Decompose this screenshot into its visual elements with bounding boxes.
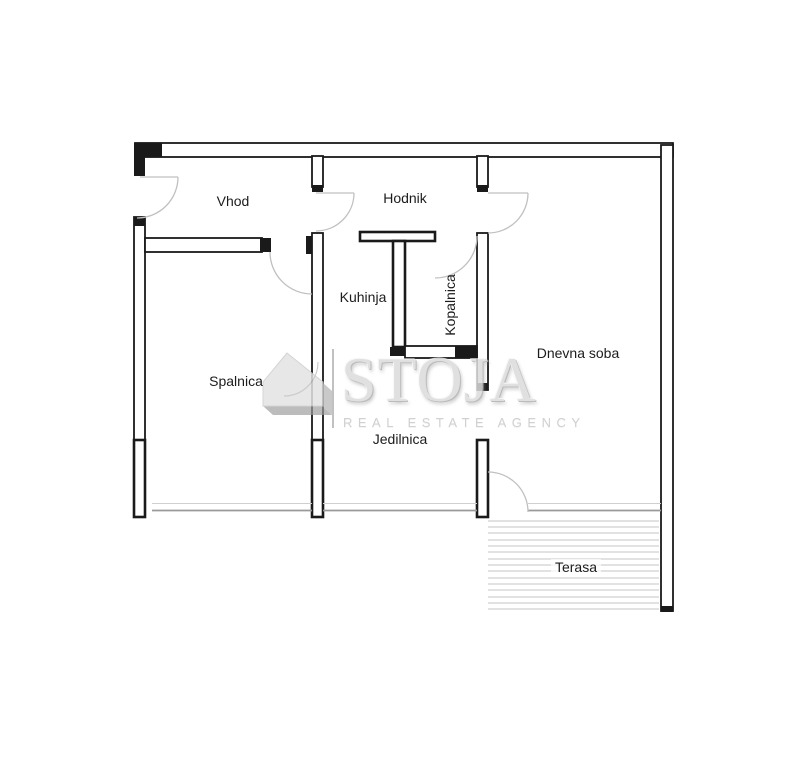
room-label-vhod: Vhod <box>217 193 250 209</box>
wall-dnevna-divider-lower <box>477 440 488 517</box>
room-label-kuhinja: Kuhinja <box>340 289 387 305</box>
wall-cap-kopalnica-bottom <box>455 346 477 358</box>
wall-right-outer <box>661 145 673 611</box>
room-label-kopalnica: Kopalnica <box>442 274 458 336</box>
door-entrance <box>137 177 178 218</box>
wall-dnevna-divider-upper <box>477 233 488 390</box>
wall-kopalnica-top <box>360 232 435 241</box>
wall-cap-hodnik-dnevna <box>477 185 488 192</box>
room-label-jedilnica: Jedilnica <box>373 431 427 447</box>
wall-cap-dnevna-divider <box>477 383 488 390</box>
wall-kuhinja-kopalnica-stem <box>393 241 405 347</box>
door-vhod-hodnik <box>316 193 354 231</box>
door-kopalnica <box>435 236 477 278</box>
wall-cap-right-bottom <box>661 606 673 612</box>
wall-stub-hodnik-dnevna <box>477 156 488 187</box>
wall-spalnica-divider-lower <box>312 440 323 517</box>
room-label-dnevna-soba: Dnevna soba <box>537 345 620 361</box>
window-jedilnica <box>323 504 477 511</box>
room-label-terasa: Terasa <box>551 559 601 575</box>
wall-cap-vhod-hodnik <box>312 185 323 192</box>
floorplan-canvas: STOJA REAL ESTATE AGENCY Vhod Hodnik Kuh… <box>0 0 812 768</box>
room-label-hodnik: Hodnik <box>383 190 427 206</box>
wall-top-outer <box>135 143 673 157</box>
door-hodnik-dnevna <box>488 193 528 233</box>
wall-left-outer-lower <box>134 440 145 517</box>
door-terasa <box>488 472 528 512</box>
room-label-spalnica: Spalnica <box>209 373 263 389</box>
window-spalnica <box>152 504 312 511</box>
wall-jamb-entrance-top <box>134 143 145 176</box>
wall-cap-vhod-spalnica <box>260 238 271 252</box>
wall-vhod-spalnica <box>145 238 262 252</box>
door-spalnica <box>270 252 312 294</box>
floorplan-drawing <box>0 0 812 768</box>
wall-stub-vhod-hodnik <box>312 156 323 187</box>
window-dnevna-soba <box>528 504 661 511</box>
